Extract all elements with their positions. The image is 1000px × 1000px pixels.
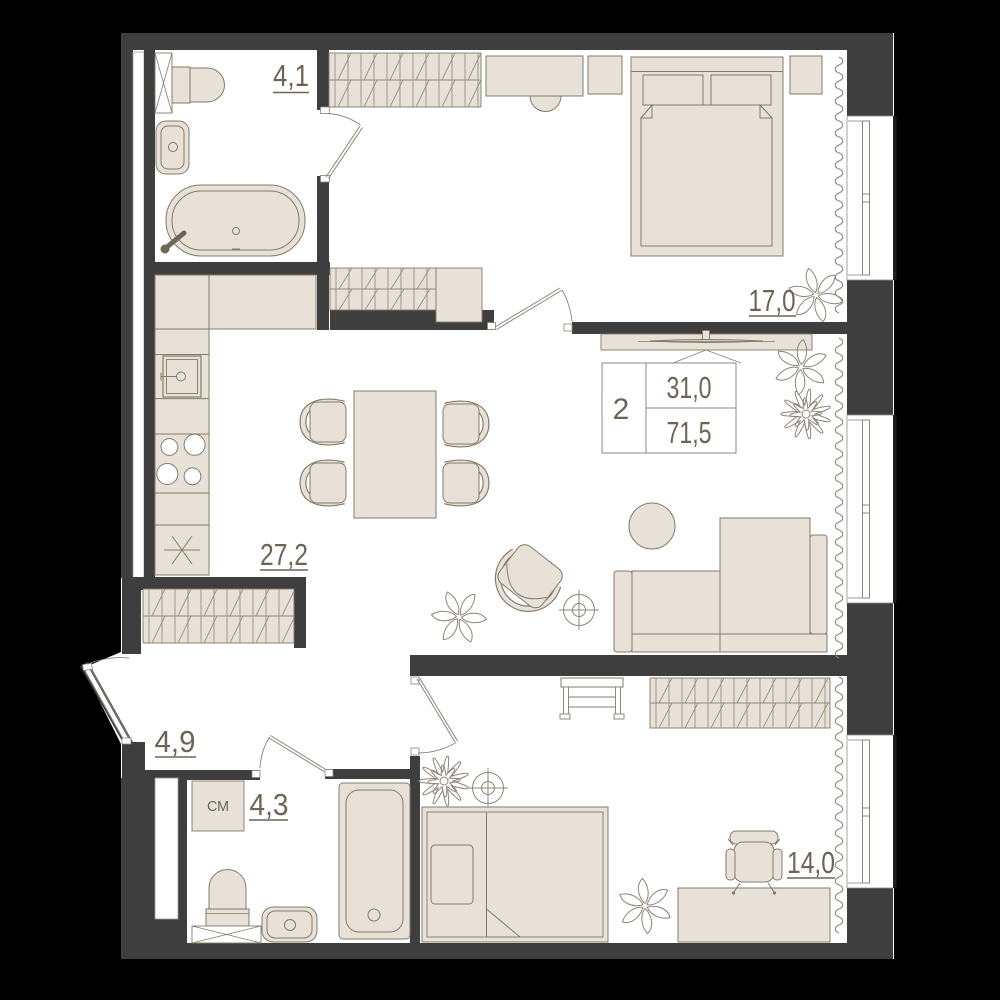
svg-text:17,0: 17,0 <box>749 283 796 318</box>
svg-text:2: 2 <box>613 393 630 426</box>
svg-text:СМ: СМ <box>207 798 229 815</box>
svg-text:4,9: 4,9 <box>155 724 196 759</box>
svg-text:71,5: 71,5 <box>667 415 712 450</box>
svg-text:4,1: 4,1 <box>273 58 309 93</box>
svg-text:31,0: 31,0 <box>667 370 712 405</box>
svg-text:4,3: 4,3 <box>250 787 289 822</box>
svg-text:14,0: 14,0 <box>787 845 835 880</box>
svg-text:27,2: 27,2 <box>260 537 308 572</box>
